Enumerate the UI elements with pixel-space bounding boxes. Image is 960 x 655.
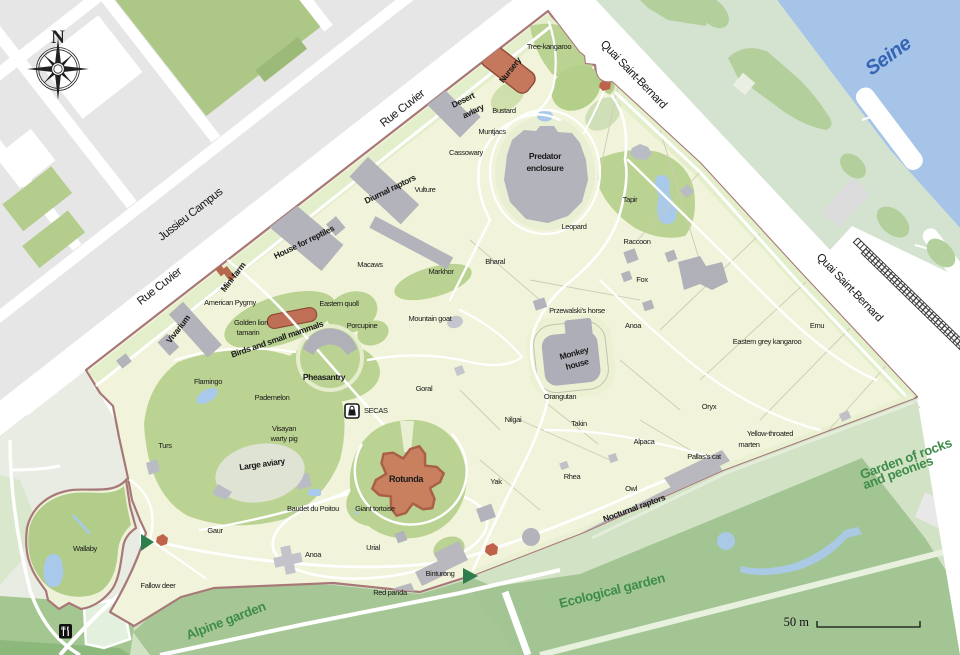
svg-text:Gaur: Gaur (207, 526, 223, 535)
svg-text:enclosure: enclosure (526, 163, 564, 173)
svg-text:marten: marten (738, 440, 759, 449)
svg-text:Binturong: Binturong (426, 569, 455, 578)
svg-text:warty pig: warty pig (270, 434, 298, 443)
svg-text:Bustard: Bustard (492, 106, 516, 115)
svg-text:Visayan: Visayan (272, 424, 296, 433)
svg-text:Raccoon: Raccoon (623, 237, 650, 246)
svg-text:Predator: Predator (529, 151, 562, 161)
svg-text:Baudet du Poitou: Baudet du Poitou (287, 504, 339, 513)
svg-text:tamarin: tamarin (237, 328, 260, 337)
svg-text:Anoa: Anoa (305, 550, 322, 559)
svg-text:Rhea: Rhea (564, 472, 582, 481)
svg-text:Eastern grey kangaroo: Eastern grey kangaroo (733, 337, 802, 346)
svg-text:Turs: Turs (158, 441, 172, 450)
svg-text:Giant tortoise: Giant tortoise (355, 504, 395, 513)
svg-text:Porcupine: Porcupine (347, 321, 378, 330)
svg-text:Wallaby: Wallaby (73, 544, 98, 553)
svg-text:Leopard: Leopard (561, 222, 586, 231)
svg-text:Tapir: Tapir (623, 195, 638, 204)
svg-text:Urial: Urial (366, 543, 380, 552)
svg-text:50 m: 50 m (784, 615, 810, 629)
svg-text:Macaws: Macaws (357, 260, 383, 269)
svg-text:Pallas’s cat: Pallas’s cat (687, 452, 722, 461)
svg-text:Alpaca: Alpaca (634, 437, 656, 446)
svg-text:Flamingo: Flamingo (194, 377, 222, 386)
svg-text:Pademelon: Pademelon (255, 393, 290, 402)
svg-text:Oryx: Oryx (702, 402, 717, 411)
svg-text:Fox: Fox (636, 275, 648, 284)
svg-text:Markhor: Markhor (428, 267, 454, 276)
svg-text:American Pygmy: American Pygmy (204, 298, 256, 307)
svg-text:Emu: Emu (810, 321, 825, 330)
svg-text:Nilgai: Nilgai (505, 415, 522, 424)
svg-text:Tree-kangaroo: Tree-kangaroo (527, 42, 572, 51)
svg-text:Yellow-throated: Yellow-throated (747, 429, 793, 438)
svg-text:Takin: Takin (571, 419, 587, 428)
svg-text:Cassowary: Cassowary (449, 148, 484, 157)
svg-text:Red panda: Red panda (373, 588, 408, 597)
svg-text:Yak: Yak (490, 477, 502, 486)
svg-text:Rotunda: Rotunda (389, 474, 424, 484)
svg-text:Pheasantry: Pheasantry (303, 372, 346, 382)
svg-text:Bharal: Bharal (485, 257, 505, 266)
svg-text:Orangutan: Orangutan (544, 392, 576, 401)
svg-text:Goral: Goral (416, 384, 433, 393)
svg-text:Anoa: Anoa (625, 321, 642, 330)
svg-text:Przewalski’s horse: Przewalski’s horse (549, 306, 605, 315)
svg-text:Golden lion: Golden lion (234, 318, 268, 327)
svg-text:Fallow deer: Fallow deer (141, 581, 177, 590)
svg-text:SECAS: SECAS (364, 406, 388, 415)
svg-text:Eastern quoll: Eastern quoll (319, 299, 359, 308)
svg-text:Vulture: Vulture (414, 185, 435, 194)
svg-text:Owl: Owl (625, 484, 638, 493)
svg-text:Muntjacs: Muntjacs (478, 127, 506, 136)
svg-text:Mountain goat: Mountain goat (409, 314, 453, 323)
